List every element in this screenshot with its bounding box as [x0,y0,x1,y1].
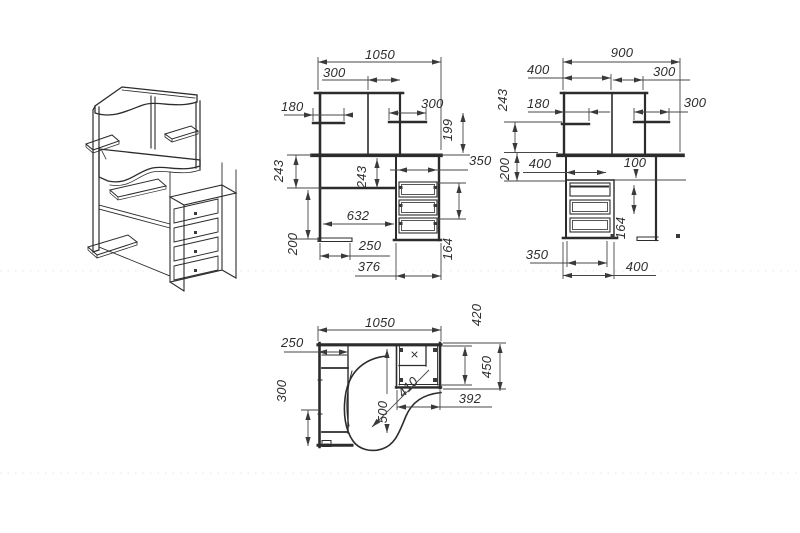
dim-side-drawer-inset: 100 [624,155,647,170]
plan-linework [318,343,441,450]
dim-front-hutch-bay: 300 [323,65,346,80]
iso-desktop [99,149,200,186]
dim-side-hutch-left-bay: 400 [527,62,550,77]
dim-side-drawer-pitch: 164 [613,217,628,240]
dim-side-pedestal-top-depth: 400 [529,156,552,171]
side-view: 900 400 300 243 180 300 200 [495,45,707,279]
dim-side-pedestal-outer-depth: 400 [626,259,649,274]
dim-front-foot: 250 [358,238,382,253]
dim-front-left-shelf: 180 [281,99,304,114]
dim-side-desktop-drop: 200 [497,157,512,181]
dim-front-pedestal-inner: 350 [469,153,492,168]
dim-plan-corner-diagonal: 410 [395,373,422,400]
dim-front-left-drop: 243 [271,159,286,183]
dim-front-drawer-pitch: 164 [440,238,455,261]
dim-plan-left-front-depth: 300 [274,379,289,402]
dim-plan-return-width: 392 [459,391,482,406]
dim-side-outer-shelf: 300 [684,95,707,110]
iso-foot [88,235,137,258]
isometric-view [86,87,236,291]
blueprint-sheet: 1050 300 180 300 199 350 243 [0,0,800,533]
dim-front-kneehole: 632 [347,208,370,223]
front-view: 1050 300 180 300 199 350 243 [271,47,492,280]
iso-right-shelf [165,126,198,142]
iso-left-shelf [86,135,119,159]
dim-side-shelf-depth: 180 [527,96,550,111]
plan-dimensions: 1050 250 300 500 410 420 450 [274,303,506,446]
dim-plan-return-outer-depth: 450 [479,355,494,378]
iso-left-panel [93,106,99,252]
dim-front-mid-drop: 243 [354,165,369,189]
dim-front-shelf-drop: 199 [440,119,455,142]
dim-side-shelf-drop: 243 [495,88,510,112]
sheet-guide-lines [0,271,800,473]
dim-plan-overall-width: 1050 [365,315,396,330]
dim-plan-left-end: 250 [280,335,304,350]
iso-drawer-unit [170,163,236,291]
blueprint-canvas: 1050 300 180 300 199 350 243 [0,0,800,533]
dim-front-right-shelf: 300 [421,96,444,111]
dim-side-pedestal-inner-depth: 350 [526,247,549,262]
dim-front-overall-width: 1050 [365,47,396,62]
dim-plan-return-inner-depth: 420 [469,303,484,326]
dim-front-pedestal-outer: 376 [358,259,381,274]
side-dimensions: 900 400 300 243 180 300 200 [495,45,707,279]
front-dimensions: 1050 300 180 300 199 350 243 [271,47,492,280]
dim-side-hutch-right-bay: 300 [653,64,676,79]
plan-view: 1050 250 300 500 410 420 450 [274,303,506,450]
dim-side-overall-depth: 900 [611,45,634,60]
dim-front-lower-drop: 200 [285,232,300,256]
